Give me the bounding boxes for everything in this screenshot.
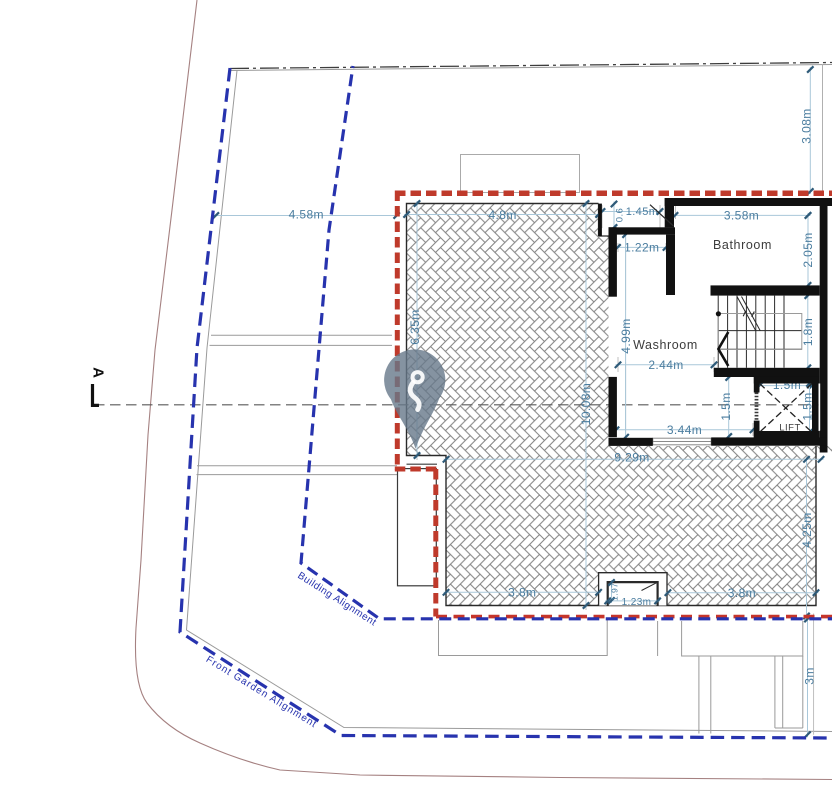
svg-text:4.58m: 4.58m bbox=[289, 208, 324, 222]
svg-text:3.08m: 3.08m bbox=[800, 108, 814, 143]
svg-text:Building Alignment: Building Alignment bbox=[295, 570, 378, 628]
svg-text:1.5m: 1.5m bbox=[719, 392, 733, 420]
svg-text:3.8m: 3.8m bbox=[508, 586, 536, 600]
svg-text:0.6: 0.6 bbox=[614, 208, 625, 222]
svg-text:2.05m: 2.05m bbox=[801, 232, 815, 267]
svg-text:4.99m: 4.99m bbox=[619, 318, 633, 353]
svg-text:Washroom: Washroom bbox=[633, 338, 698, 352]
svg-text:LIFT: LIFT bbox=[779, 422, 801, 433]
svg-text:1.22m: 1.22m bbox=[624, 241, 659, 255]
svg-text:9.29m: 9.29m bbox=[614, 451, 649, 465]
svg-text:1.8m: 1.8m bbox=[801, 318, 815, 346]
svg-text:1.23m: 1.23m bbox=[622, 597, 652, 608]
svg-text:2.44m: 2.44m bbox=[648, 358, 683, 372]
svg-text:3.58m: 3.58m bbox=[724, 209, 759, 223]
svg-text:10.08m: 10.08m bbox=[579, 383, 593, 425]
svg-text:3.44m: 3.44m bbox=[667, 423, 702, 437]
svg-text:4.8m: 4.8m bbox=[488, 208, 516, 222]
svg-text:4.25m: 4.25m bbox=[800, 512, 814, 547]
svg-text:3.8m: 3.8m bbox=[728, 586, 756, 600]
svg-text:Front Garden Alignment: Front Garden Alignment bbox=[204, 654, 319, 730]
svg-text:Bathroom: Bathroom bbox=[713, 238, 772, 252]
svg-text:1.97: 1.97 bbox=[610, 583, 620, 601]
svg-text:3m: 3m bbox=[802, 667, 816, 684]
svg-text:A: A bbox=[90, 367, 107, 378]
svg-text:6.35m: 6.35m bbox=[408, 309, 422, 344]
